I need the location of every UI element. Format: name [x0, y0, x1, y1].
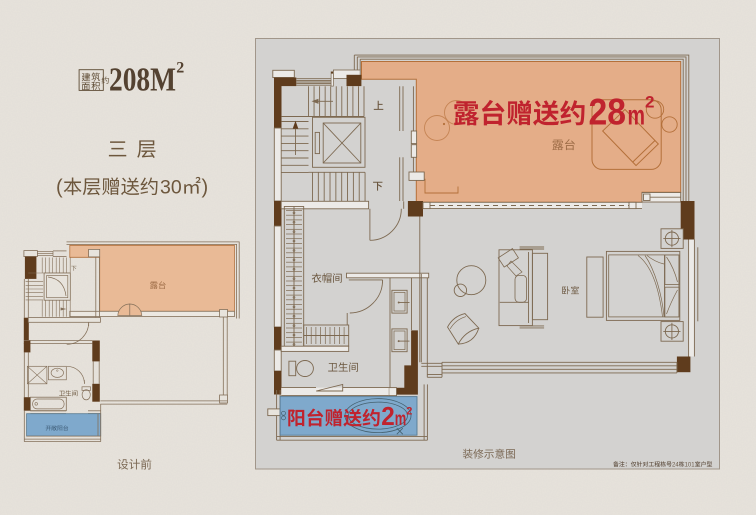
svg-text:2: 2 — [381, 403, 395, 431]
svg-text:24: 24 — [672, 462, 679, 468]
svg-text:28: 28 — [589, 92, 627, 133]
svg-text:m: m — [395, 409, 407, 430]
svg-text:30: 30 — [160, 177, 182, 199]
svg-text:2: 2 — [406, 406, 412, 418]
svg-text:2: 2 — [645, 93, 654, 112]
svg-text:m: m — [628, 100, 646, 131]
svg-text:(: ( — [56, 177, 63, 199]
svg-text:): ) — [202, 177, 209, 199]
svg-text:208M: 208M — [109, 62, 176, 99]
svg-text:101: 101 — [685, 462, 696, 468]
svg-text:2: 2 — [176, 60, 184, 77]
